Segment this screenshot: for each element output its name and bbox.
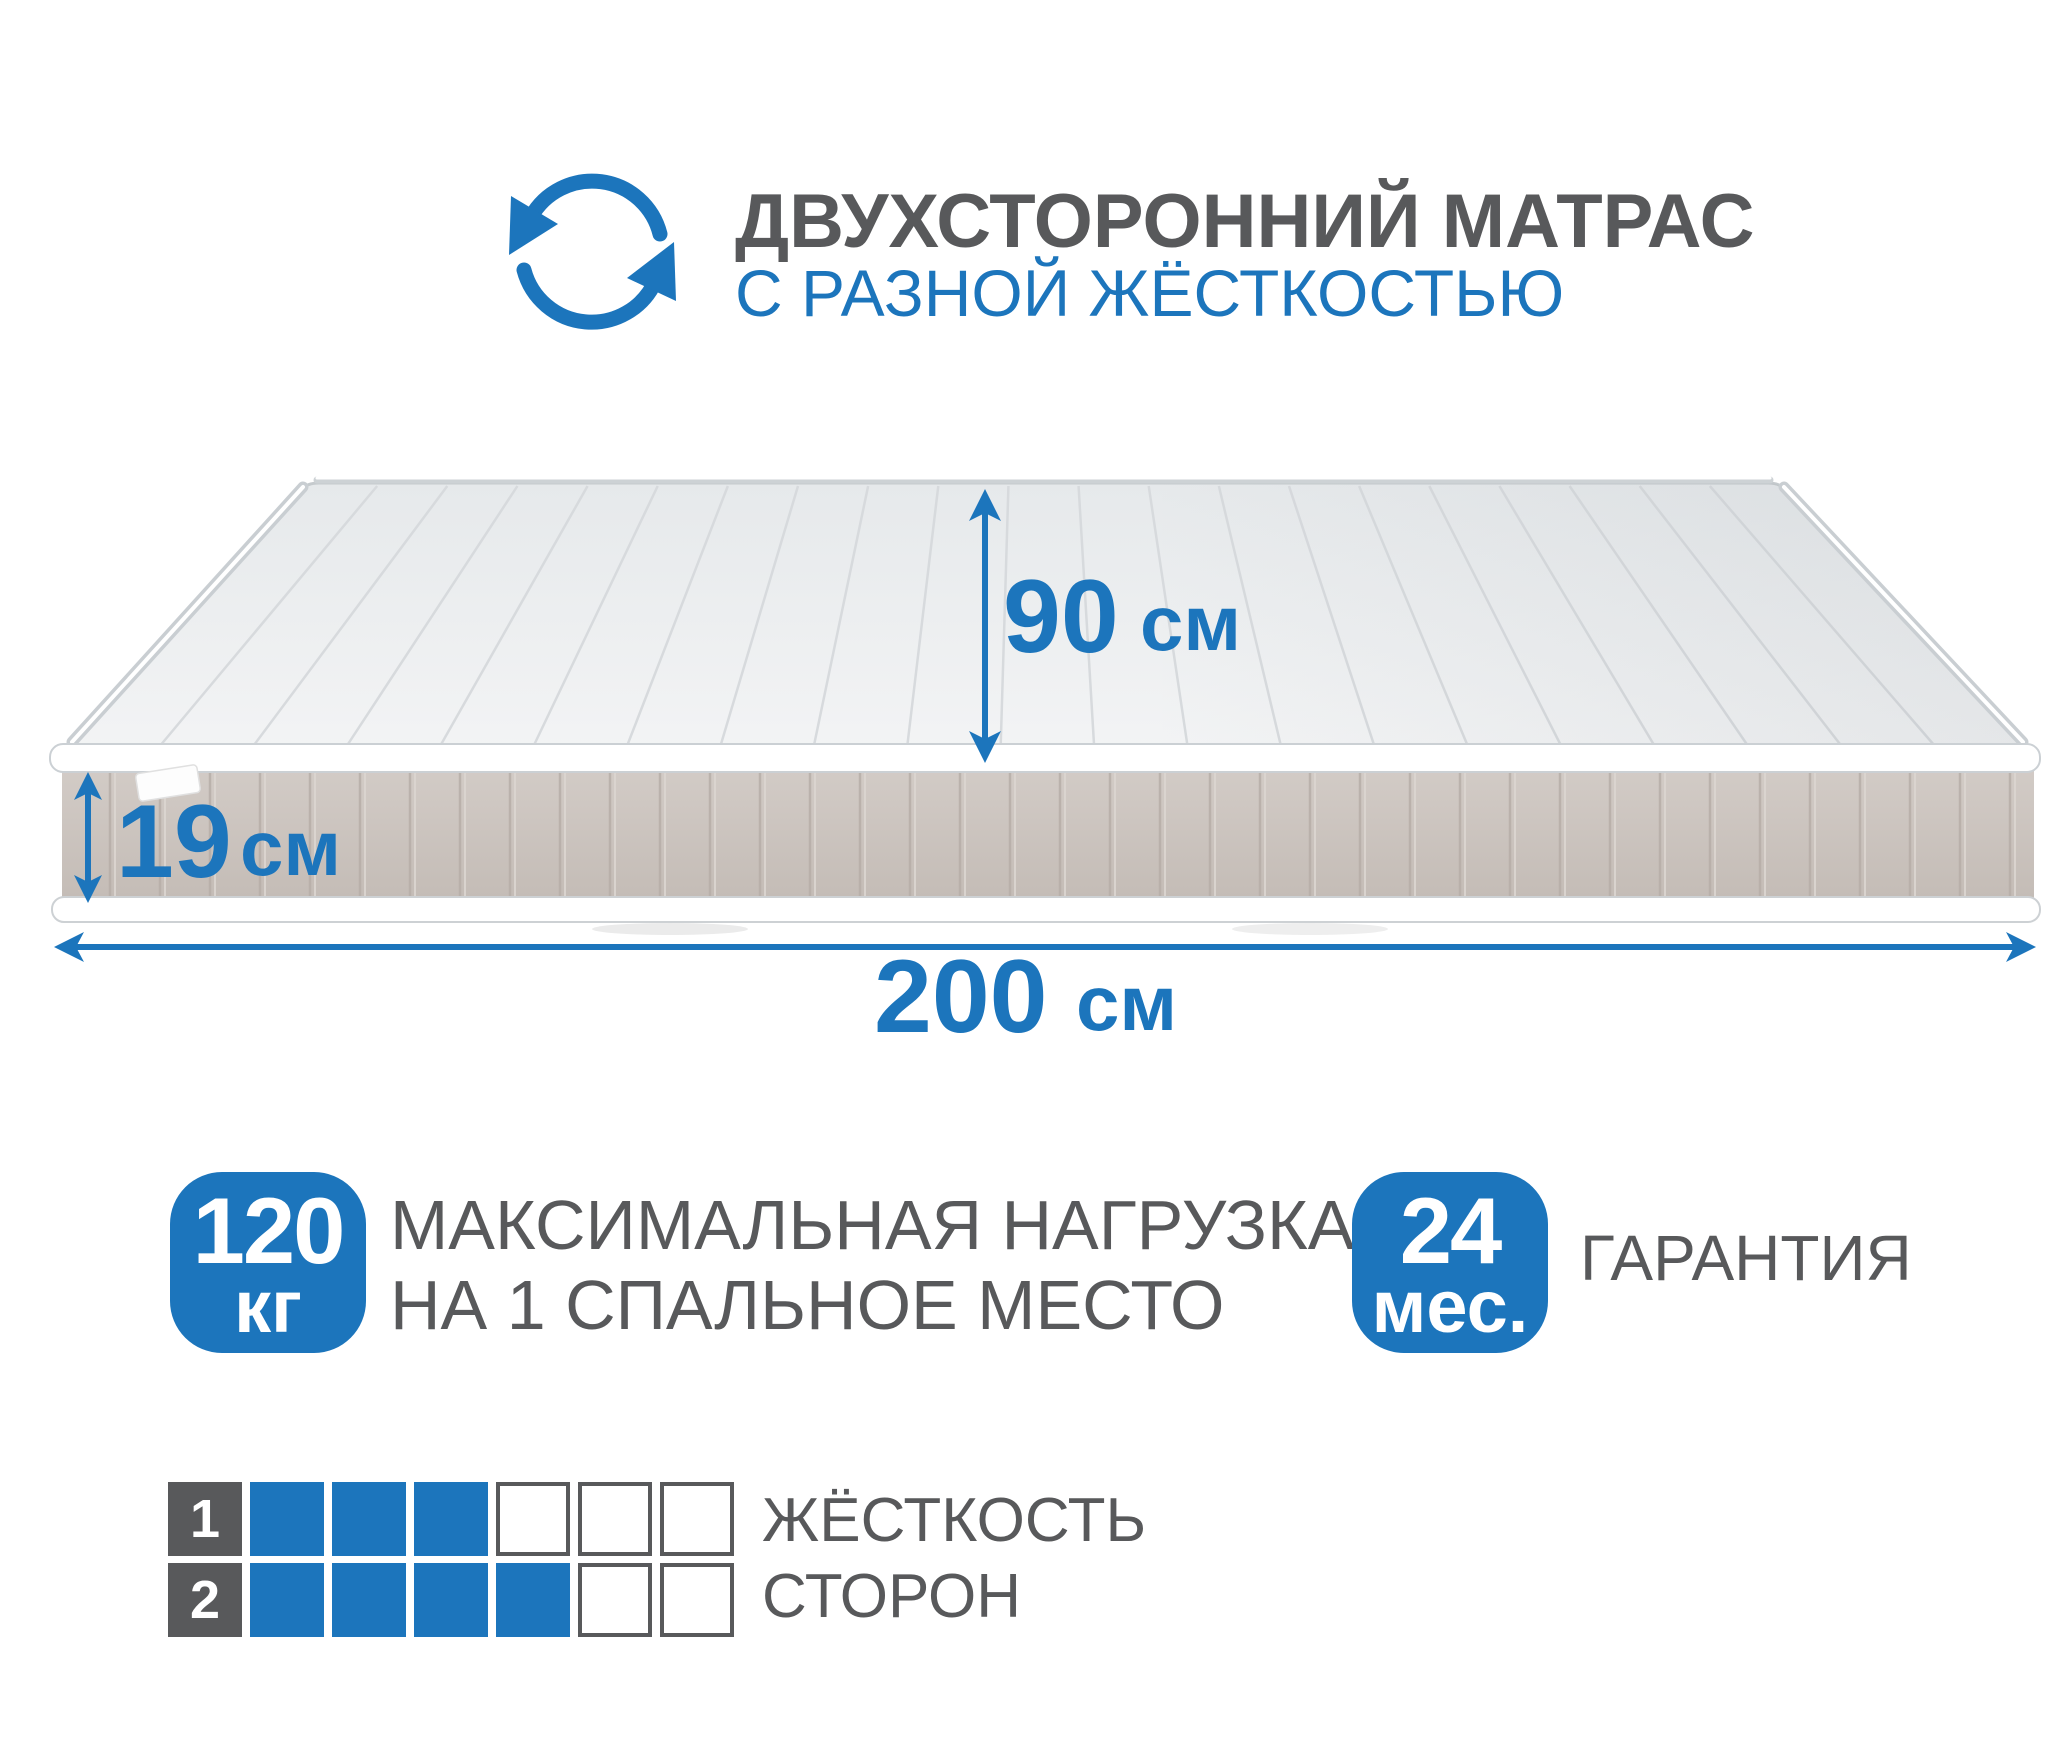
- max-load-value: 120: [193, 1186, 344, 1275]
- max-load-unit: кг: [234, 1276, 302, 1339]
- floor-shadow: [592, 923, 748, 935]
- infographic-page: 90 см 19 см 200 см ДВУХСТОРОННИЙ МАТРАС …: [0, 0, 2048, 1757]
- bottom-piping: [52, 897, 2040, 922]
- firmness-cell-filled: [332, 1482, 406, 1556]
- firmness-cell-filled: [332, 1563, 406, 1637]
- max-load-badge: 120 кг: [170, 1172, 366, 1353]
- length-value-label: 200: [874, 939, 1048, 1055]
- firmness-label-line2: СТОРОН: [762, 1559, 1146, 1635]
- max-load-label-line1: МАКСИМАЛЬНАЯ НАГРУЗКА: [390, 1185, 1354, 1265]
- firmness-label-line1: ЖЁСТКОСТЬ: [762, 1483, 1146, 1559]
- firmness-cell-filled: [250, 1563, 324, 1637]
- side-number: 2: [168, 1563, 242, 1637]
- firmness-row: 2: [168, 1563, 734, 1637]
- page-title: ДВУХСТОРОННИЙ МАТРАС: [735, 184, 1755, 260]
- firmness-cell-filled: [496, 1563, 570, 1637]
- length-unit-label: см: [1076, 959, 1177, 1047]
- top-piping: [50, 744, 2040, 772]
- firmness-cell-empty: [660, 1563, 734, 1637]
- firmness-cell-empty: [660, 1482, 734, 1556]
- height-value-label: 19: [116, 784, 232, 900]
- mattress-side: [50, 744, 2040, 935]
- firmness-chart: 12: [168, 1482, 734, 1644]
- page-subtitle: С РАЗНОЙ ЖЁСТКОСТЬЮ: [735, 260, 1564, 326]
- side-number: 1: [168, 1482, 242, 1556]
- firmness-cell-empty: [578, 1482, 652, 1556]
- firmness-cell-filled: [414, 1563, 488, 1637]
- warranty-value: 24: [1400, 1186, 1501, 1275]
- warranty-label-line1: ГАРАНТИЯ: [1580, 1221, 1912, 1295]
- warranty-label: ГАРАНТИЯ: [1580, 1221, 1912, 1295]
- max-load-label: МАКСИМАЛЬНАЯ НАГРУЗКА НА 1 СПАЛЬНОЕ МЕСТ…: [390, 1185, 1354, 1345]
- rotate-arrows-icon: [509, 181, 676, 322]
- width-unit-label: см: [1140, 579, 1241, 667]
- firmness-row: 1: [168, 1482, 734, 1556]
- width-value-label: 90: [1003, 559, 1119, 675]
- firmness-cell-empty: [496, 1482, 570, 1556]
- floor-shadow: [1232, 923, 1388, 935]
- max-load-label-line2: НА 1 СПАЛЬНОЕ МЕСТО: [390, 1265, 1354, 1345]
- firmness-label: ЖЁСТКОСТЬ СТОРОН: [762, 1483, 1146, 1635]
- firmness-cell-filled: [414, 1482, 488, 1556]
- height-unit-label: см: [240, 804, 341, 892]
- warranty-unit: мес.: [1372, 1276, 1529, 1339]
- warranty-badge: 24 мес.: [1352, 1172, 1548, 1353]
- firmness-cell-empty: [578, 1563, 652, 1637]
- firmness-cell-filled: [250, 1482, 324, 1556]
